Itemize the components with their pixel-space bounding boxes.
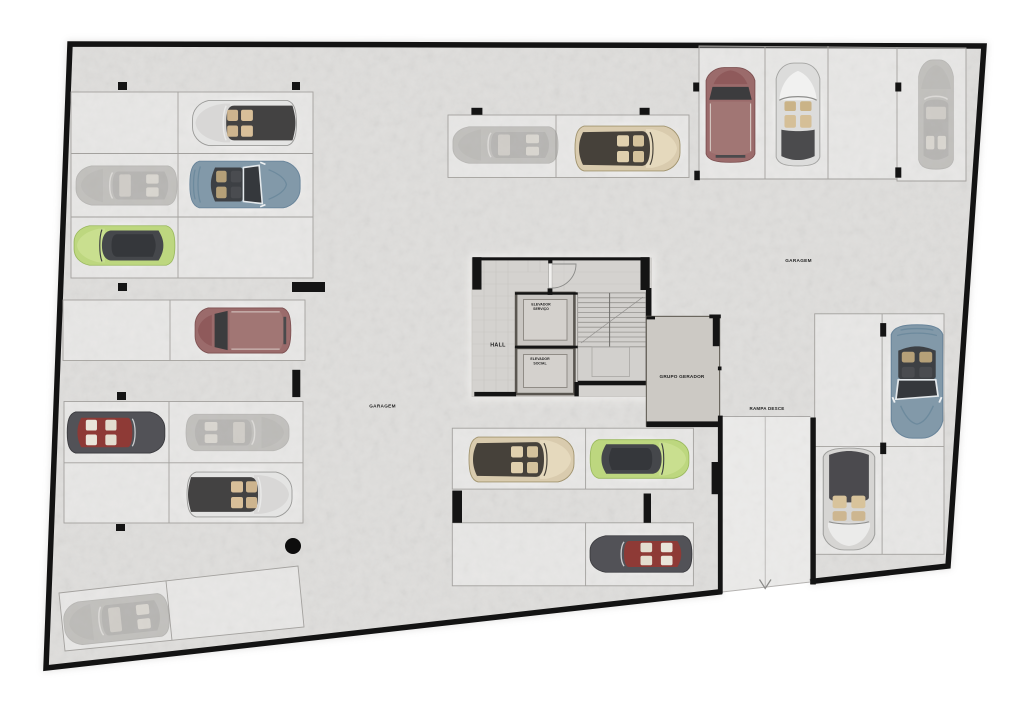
svg-text:GARAGEM: GARAGEM <box>369 403 396 408</box>
svg-text:ELEVADOR: ELEVADOR <box>531 303 551 307</box>
svg-text:GARAGEM: GARAGEM <box>785 258 812 263</box>
svg-text:GRUPO GERADOR: GRUPO GERADOR <box>659 374 704 379</box>
svg-text:SOCIAL: SOCIAL <box>533 362 547 366</box>
svg-text:RAMPA DESCE: RAMPA DESCE <box>750 406 785 411</box>
svg-text:SERVIÇO: SERVIÇO <box>533 307 549 311</box>
svg-text:HALL: HALL <box>490 343 506 349</box>
svg-text:ELEVADOR: ELEVADOR <box>530 357 550 361</box>
